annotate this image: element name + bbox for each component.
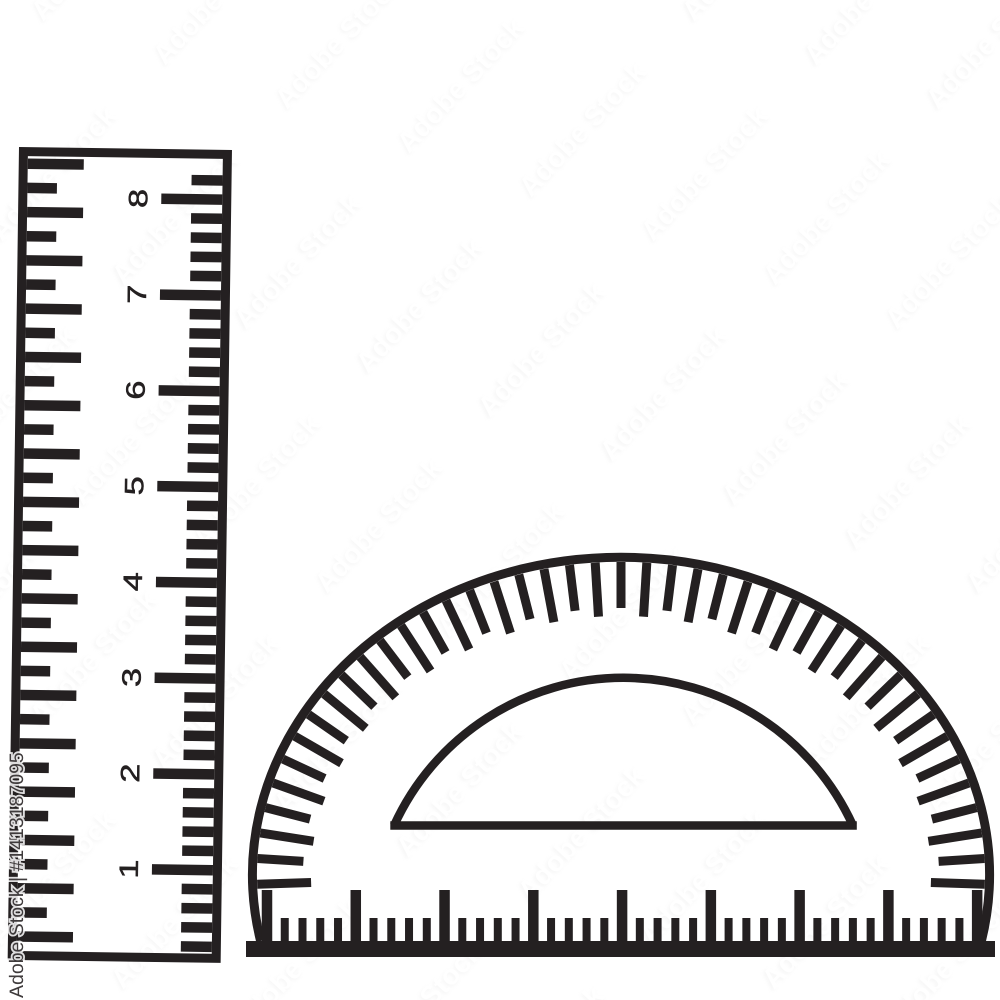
svg-text:2: 2 <box>115 763 145 783</box>
svg-text:8: 8 <box>123 189 153 209</box>
svg-text:6: 6 <box>120 380 150 400</box>
svg-text:7: 7 <box>122 284 152 304</box>
svg-text:4: 4 <box>118 572 148 592</box>
svg-text:1: 1 <box>114 859 144 879</box>
svg-text:Adobe Stock | #1413187095: Adobe Stock | #1413187095 <box>6 752 28 998</box>
svg-text:5: 5 <box>119 476 149 496</box>
svg-text:3: 3 <box>116 668 146 688</box>
